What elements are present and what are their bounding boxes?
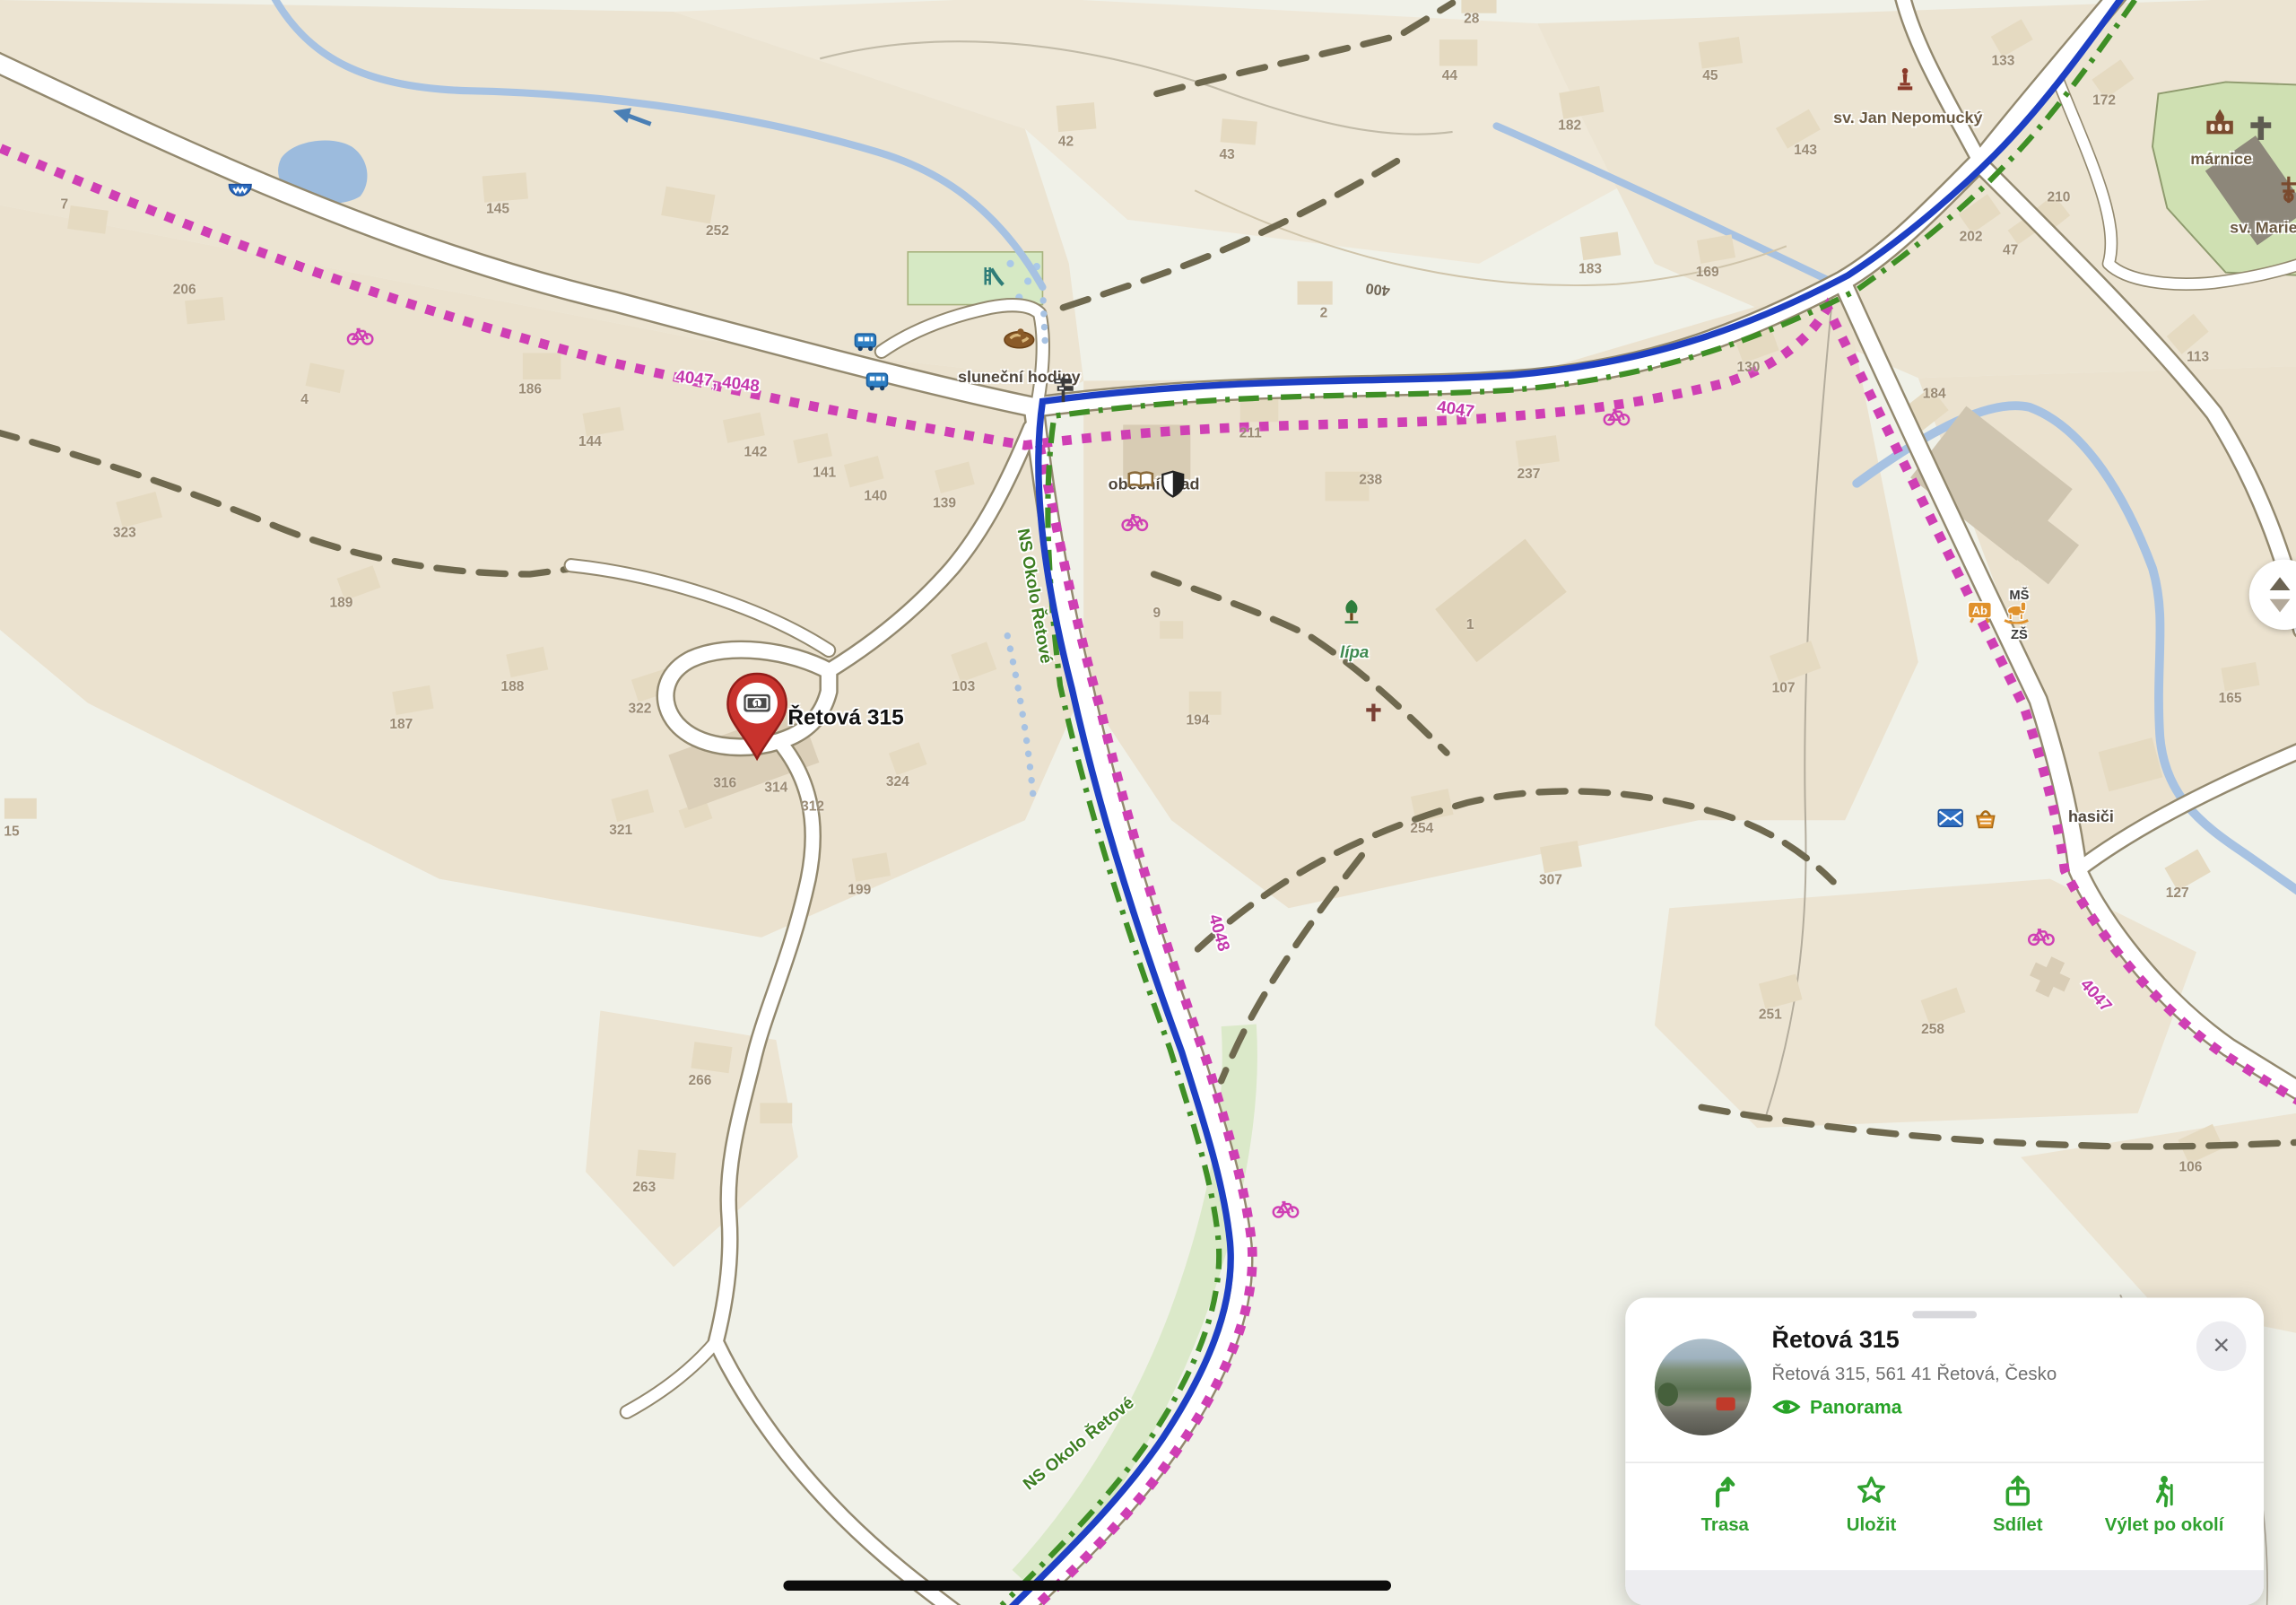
eye-icon: [1772, 1396, 1802, 1417]
drag-handle[interactable]: [1912, 1311, 1977, 1318]
card-actions: Trasa Uložit Sdílet Výlet po okolí: [1652, 1473, 2264, 1535]
place-address: Řetová 315, 561 41 Řetová, Česko: [1772, 1364, 2057, 1384]
panorama-link[interactable]: Panorama: [1772, 1396, 1902, 1417]
banknote-icon: 1: [744, 694, 770, 712]
trip-around-button[interactable]: Výlet po okolí: [2091, 1473, 2237, 1535]
card-divider: [1625, 1461, 2264, 1463]
place-title: Řetová 315: [1772, 1327, 1900, 1355]
map-viewport[interactable]: 2844451331724243182143714525220618316920…: [0, 0, 2296, 1605]
card-next-section: [1625, 1570, 2264, 1605]
place-card: × Řetová 315 Řetová 315, 561 41 Řetová, …: [1625, 1298, 2264, 1605]
more-action-button[interactable]: Ti: [2238, 1473, 2264, 1535]
place-photo[interactable]: [1655, 1339, 1752, 1435]
marker-label: Řetová 315: [787, 705, 903, 730]
share-icon: [2000, 1473, 2035, 1508]
star-icon: [1854, 1473, 1889, 1508]
place-marker-pin[interactable]: 1: [722, 669, 792, 771]
panorama-label: Panorama: [1810, 1396, 1902, 1417]
home-indicator[interactable]: [783, 1581, 1391, 1591]
route-button[interactable]: Trasa: [1652, 1473, 1798, 1535]
hiker-icon: [2146, 1473, 2181, 1508]
svg-text:1: 1: [754, 700, 760, 710]
save-button[interactable]: Uložit: [1798, 1473, 1944, 1535]
close-icon[interactable]: ×: [2196, 1322, 2247, 1372]
route-arrow-icon: [1708, 1473, 1743, 1508]
chevron-arrows-icon: [2261, 568, 2296, 621]
share-button[interactable]: Sdílet: [1944, 1473, 2091, 1535]
